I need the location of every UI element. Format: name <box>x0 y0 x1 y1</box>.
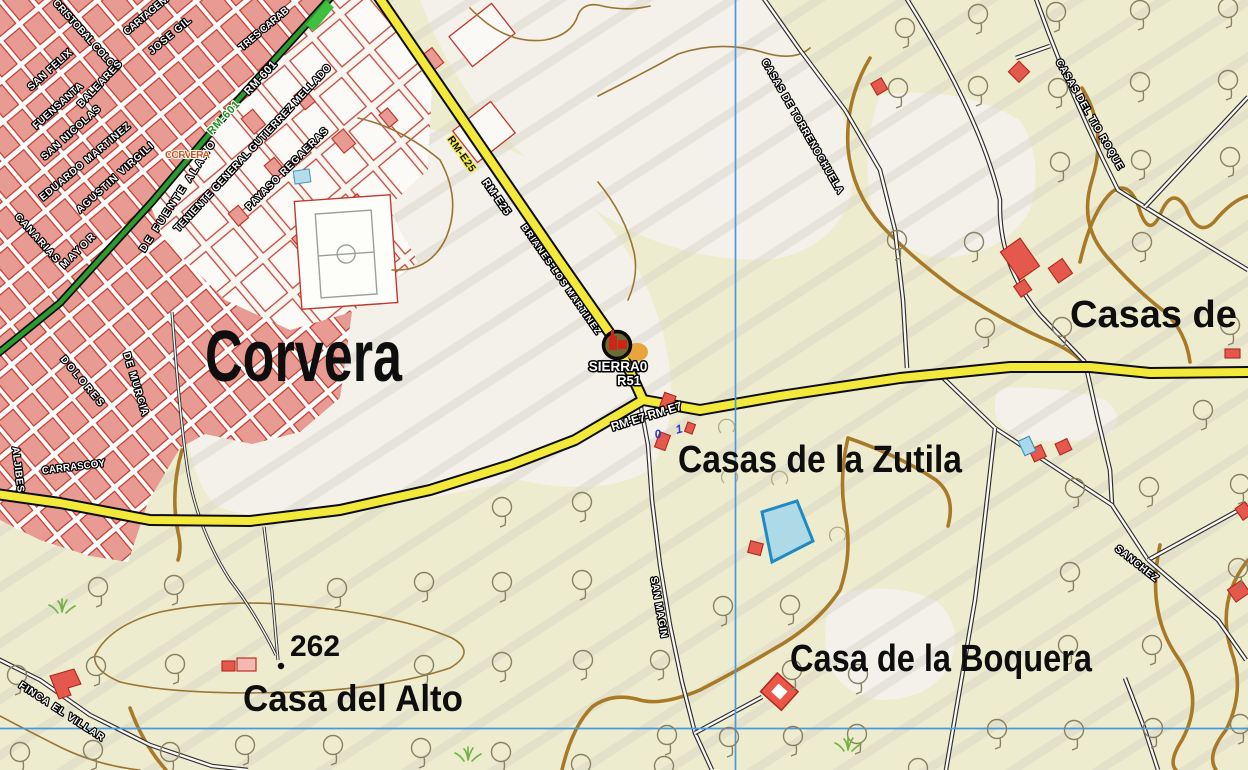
marker-title: SIERRA0 <box>589 359 648 374</box>
pool-building <box>293 169 311 184</box>
settlement-label-boquera: Casa de la Boquera <box>790 638 1093 680</box>
football-field <box>294 195 397 309</box>
marker-code: R51 <box>617 373 641 388</box>
map-canvas[interactable]: SIERRA0 R51 262 0 1 CARTAGENA CRISTOBAL … <box>0 0 1248 770</box>
settlement-label-corvera: Corvera <box>205 317 403 397</box>
alto-building-outline <box>237 658 256 671</box>
settlement-label-casas-de-p: Casas de Pi <box>1070 294 1248 336</box>
settlement-label-alto: Casa del Alto <box>243 678 463 719</box>
settlement-label-zutila: Casas de la Zutila <box>678 439 963 481</box>
settlement-label-corvera-small: CORVERA <box>165 149 211 161</box>
elevation-label: 262 <box>290 630 340 663</box>
